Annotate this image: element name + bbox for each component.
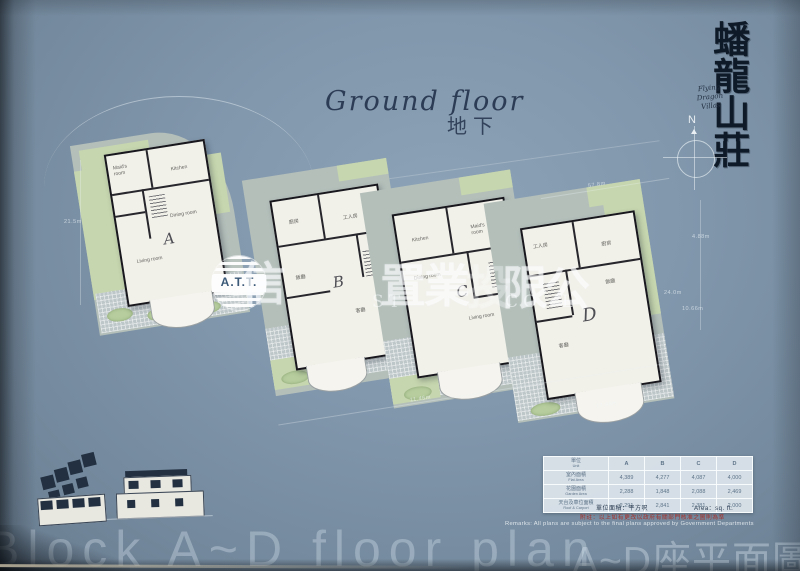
- table-cell: 2,469: [717, 485, 753, 499]
- row-label-en: Flat Area: [544, 478, 608, 482]
- section-elevation: [115, 469, 203, 526]
- room-label: Kitchen: [411, 235, 428, 244]
- dimension-label: 24.0m: [664, 290, 682, 296]
- area-unit-note-zh: 單位面積：平方呎: [596, 503, 648, 512]
- table-cell: 4,277: [645, 471, 681, 485]
- room-label: Maid's room: [113, 163, 129, 177]
- interior-wall: [445, 208, 454, 254]
- compass-crosshair-v: [694, 126, 695, 190]
- section-window: [150, 480, 160, 488]
- brochure-page: Ground floor 地下 蟠龍山莊 Flying Dragon Villa…: [0, 0, 800, 571]
- col-header-a: A: [609, 457, 645, 471]
- table-cell: 2,288: [609, 485, 645, 499]
- key-roof: [81, 452, 97, 468]
- key-roof: [62, 483, 75, 495]
- red-disclaimer: 附註：以上如有更改以政府有關部門核准之圖則為準: [580, 512, 725, 521]
- room-label: Dining room: [170, 209, 198, 219]
- elevation-window: [40, 500, 53, 510]
- unit-header-en: Unit: [544, 464, 608, 468]
- col-header-b: B: [645, 457, 681, 471]
- unit-letter: B: [332, 272, 346, 292]
- key-roof: [76, 476, 89, 488]
- area-unit-note-en: Area：sq. ft.: [694, 503, 733, 512]
- table-cell: 2,088: [681, 485, 717, 499]
- room-label: 飯廳: [295, 274, 306, 281]
- col-header-c: C: [681, 457, 717, 471]
- room-label: 飯廳: [605, 278, 616, 285]
- key-roof: [67, 459, 83, 475]
- room-label: Maid's room: [470, 222, 486, 236]
- row-label-en: Garden Area: [544, 492, 608, 496]
- interior-wall: [115, 211, 145, 217]
- interior-wall: [287, 290, 331, 298]
- watermark-cn: 業: [424, 250, 470, 316]
- watermark-en: CO. L: [505, 292, 578, 312]
- section-window: [127, 500, 135, 508]
- stairs: [149, 194, 168, 218]
- elevation-window: [88, 497, 101, 507]
- compass-crosshair-h: [663, 157, 727, 158]
- interior-wall: [146, 150, 153, 188]
- table-header-row: 單位 Unit A B C D: [544, 457, 753, 471]
- room-label: 客廳: [355, 307, 366, 314]
- room-label: Living room: [136, 255, 162, 265]
- table-row: 花園面積 Garden Area 2,288 1,848 2,088 2,469: [544, 485, 753, 499]
- table-cell: 1,848: [645, 485, 681, 499]
- col-header-d: D: [717, 457, 753, 471]
- footer-title-zh: A~D座平面圖: [572, 530, 800, 571]
- room-label: Kitchen: [170, 164, 187, 173]
- table-cell: 2,841: [645, 499, 681, 513]
- row-label: 花園面積 Garden Area: [544, 485, 609, 499]
- table-cell: 4,000: [717, 471, 753, 485]
- unit-letter: A: [162, 229, 176, 248]
- villa-name-script: Flying Dragon Villas: [687, 82, 734, 114]
- room-label: 工人房: [533, 242, 549, 250]
- dimension-line: [700, 200, 701, 330]
- room-label: 廚房: [601, 240, 612, 247]
- room-label: 客廳: [558, 342, 569, 349]
- room-label: 工人房: [343, 213, 359, 221]
- elevation-window: [72, 498, 85, 508]
- table-cell: 4,087: [681, 471, 717, 485]
- table-cell: 4,389: [609, 471, 645, 485]
- section-window: [172, 479, 182, 487]
- page-title-chinese: 地下: [447, 110, 499, 139]
- row-label: 室內面積 Flat Area: [544, 471, 609, 485]
- room-label: 廚房: [289, 218, 300, 225]
- section-window: [175, 498, 183, 506]
- watermark-en: ST: [372, 292, 405, 312]
- interior-wall: [317, 195, 325, 239]
- unit-header: 單位 Unit: [544, 457, 609, 471]
- section-window: [151, 499, 159, 507]
- north-label: N: [688, 114, 697, 126]
- compass-icon: [677, 140, 715, 178]
- table-row: 室內面積 Flat Area 4,389 4,277 4,087 4,000: [544, 471, 753, 485]
- dimension-line: [80, 160, 81, 305]
- section-window: [128, 481, 138, 489]
- interior-wall: [112, 179, 209, 196]
- elevation-window: [56, 499, 69, 509]
- watermark-en: T: [246, 292, 262, 312]
- key-roof: [54, 467, 70, 483]
- key-roof: [40, 474, 56, 490]
